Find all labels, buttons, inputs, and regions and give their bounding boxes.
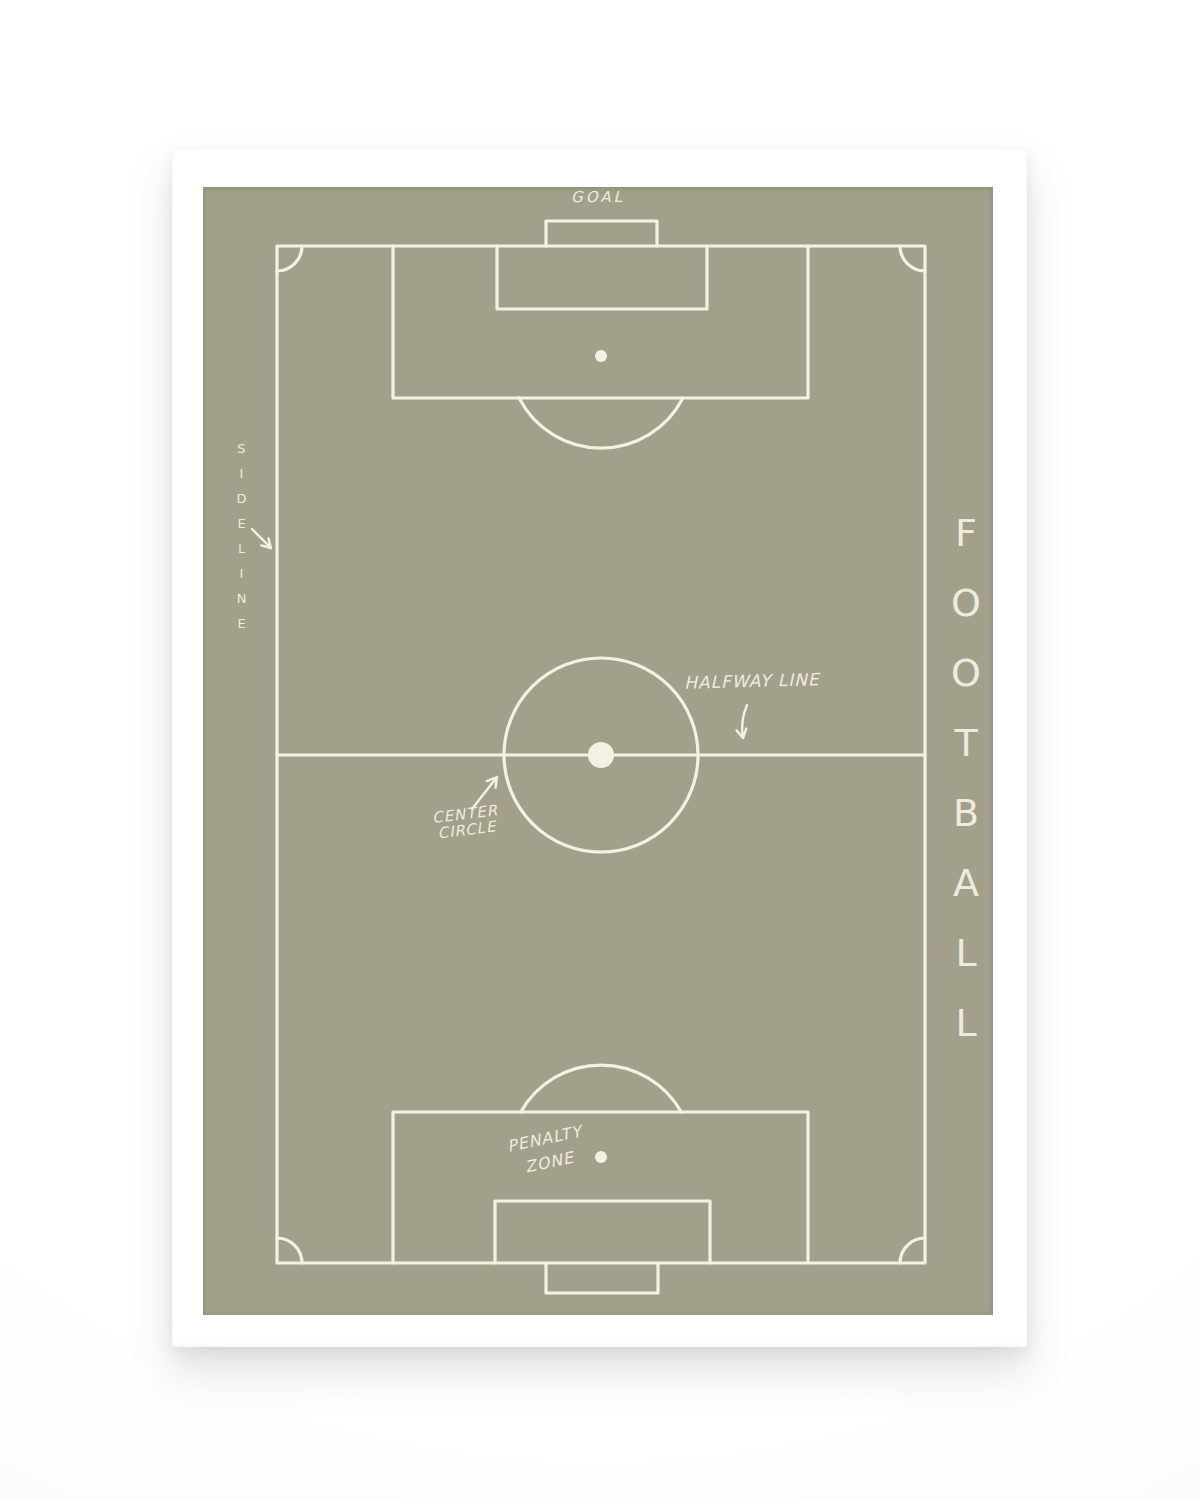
- sideline-label: SIDELINE: [234, 441, 249, 641]
- center-spot: [588, 742, 614, 768]
- corner-arc-bottom-left: [277, 1238, 302, 1263]
- corner-arc-top-right: [900, 246, 925, 271]
- sideline-arrow-icon: [252, 529, 271, 548]
- halfway-line-arrow-icon: [737, 705, 748, 738]
- bottom-goal-area: [495, 1201, 710, 1263]
- top-penalty-spot: [595, 350, 607, 362]
- top-penalty-area: [393, 246, 808, 398]
- goal-label: GOAL: [203, 188, 993, 206]
- corner-arc-top-left: [277, 246, 302, 271]
- football-pitch-poster: GOAL SIDELINE HALFWAY LINE CENTER CIRCLE…: [203, 187, 993, 1315]
- poster-frame: GOAL SIDELINE HALFWAY LINE CENTER CIRCLE…: [172, 150, 1027, 1347]
- halfway-line-label: HALFWAY LINE: [684, 669, 820, 693]
- top-goal-area: [497, 246, 707, 309]
- top-goal-box: [546, 221, 657, 246]
- football-title: FOOTBALL: [944, 511, 988, 1071]
- bottom-penalty-arc: [521, 1065, 681, 1112]
- bottom-goal-box: [546, 1263, 658, 1293]
- product-photo-background: GOAL SIDELINE HALFWAY LINE CENTER CIRCLE…: [0, 0, 1200, 1500]
- corner-arc-bottom-right: [900, 1238, 925, 1263]
- top-penalty-arc: [519, 398, 683, 448]
